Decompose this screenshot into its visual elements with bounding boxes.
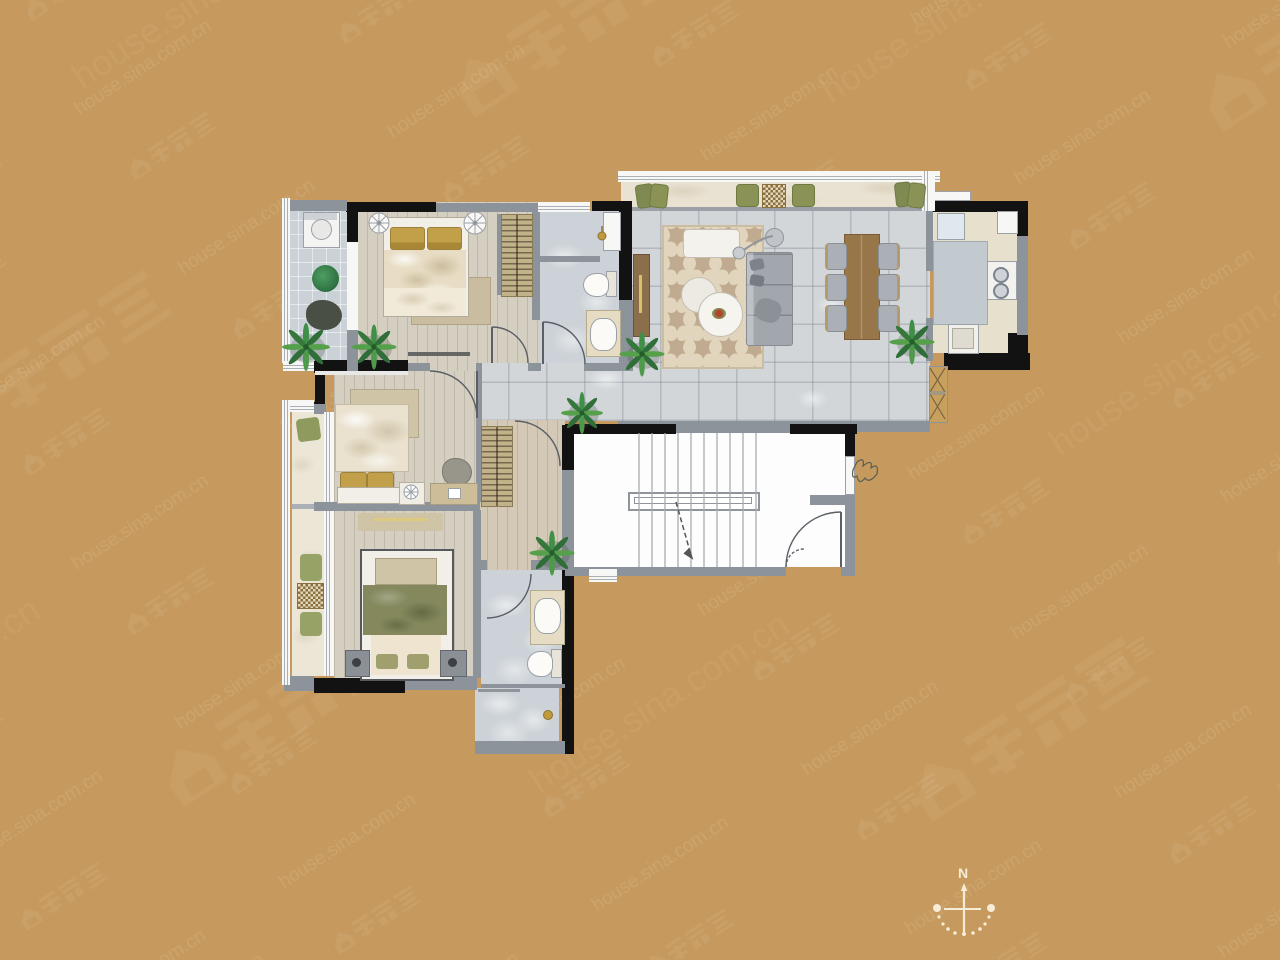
svg-text:N: N [958, 865, 968, 881]
